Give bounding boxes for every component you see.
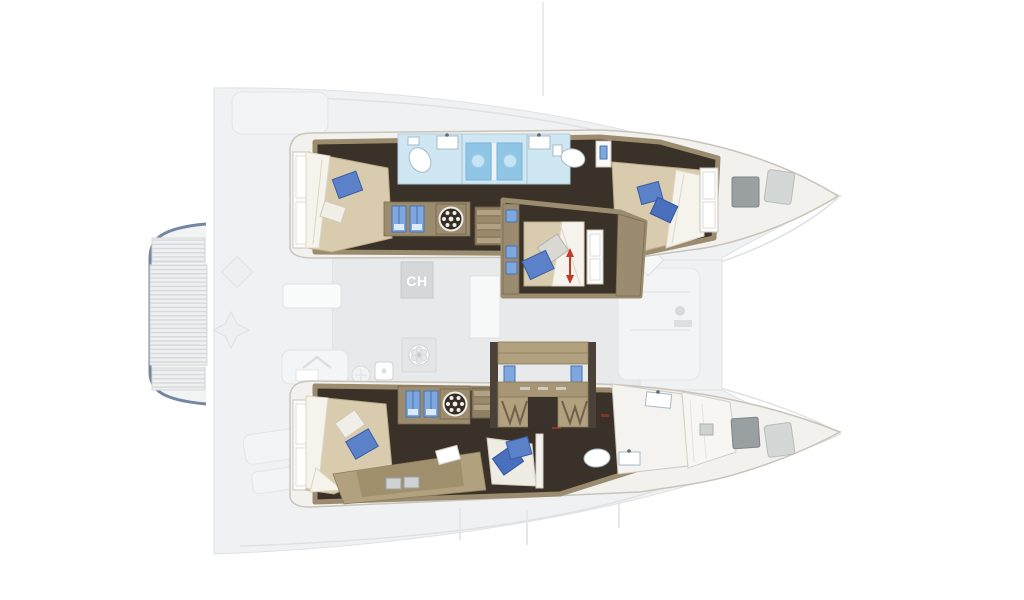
deck-hatch-icon xyxy=(731,417,760,449)
sink-icon xyxy=(645,392,671,409)
wardrobe-door-2 xyxy=(296,448,307,486)
port-aft-cabin xyxy=(293,152,392,252)
partition-wall xyxy=(536,434,543,488)
step xyxy=(477,217,503,222)
handle xyxy=(556,387,566,390)
hanging-locker-icon xyxy=(424,391,438,417)
door-panel-1 xyxy=(703,172,715,199)
step xyxy=(477,210,503,215)
door-panel-2 xyxy=(703,202,715,228)
sink-icon-left xyxy=(437,136,458,149)
step xyxy=(477,238,503,243)
faucet xyxy=(656,390,660,394)
hanging-locker-icon xyxy=(406,391,420,417)
washing-machine-icon xyxy=(436,204,466,234)
cockpit-bench-top xyxy=(232,92,328,134)
deck-hatch-icon xyxy=(732,177,759,207)
galley-cabinet xyxy=(490,342,596,428)
door-panel-2 xyxy=(590,259,600,280)
sink-icon xyxy=(619,452,640,465)
shower-drain-1 xyxy=(472,155,485,168)
shelf-towel xyxy=(506,210,517,222)
floor-plan-canvas: CH xyxy=(0,0,1024,600)
deck-fitting xyxy=(675,306,685,316)
hull-trim xyxy=(616,214,645,296)
blue-bottle xyxy=(504,366,515,382)
deck-hatch-icon xyxy=(764,169,795,204)
catamaran-floor-plan: CH xyxy=(0,0,1024,600)
cabinet-side-right xyxy=(588,342,596,428)
blue-bottle xyxy=(571,366,582,382)
hanging-locker-icon xyxy=(392,206,406,232)
step xyxy=(474,405,492,410)
handle xyxy=(520,387,530,390)
salon-fridge-cabinet xyxy=(470,276,500,338)
door-panel-1 xyxy=(590,234,600,256)
chart-station-label: CH xyxy=(406,273,427,289)
starboard-utility xyxy=(398,386,494,424)
shower-drain xyxy=(700,424,713,435)
wardrobe-door-1 xyxy=(296,156,307,198)
wardrobe-door-2 xyxy=(296,202,307,244)
forward-master-cabin xyxy=(503,200,645,296)
step xyxy=(477,231,503,236)
deck-hatch-icon xyxy=(764,422,795,457)
faucet-right xyxy=(537,133,541,137)
sink-drain xyxy=(382,369,387,374)
wardrobe-door-1 xyxy=(296,404,307,444)
washing-machine-icon xyxy=(440,389,470,419)
toilet-tank-left xyxy=(408,137,419,145)
drawer-1 xyxy=(386,478,401,489)
cabinet-side-left xyxy=(490,342,498,428)
locker-gap xyxy=(528,397,558,427)
salon-aft-door xyxy=(283,284,341,308)
stern-platform xyxy=(150,224,207,404)
dimension-mark xyxy=(601,414,609,417)
drawer-2 xyxy=(404,477,419,488)
shelf-towel xyxy=(506,262,517,274)
shelf-towel xyxy=(506,246,517,258)
step xyxy=(474,398,492,403)
platform-slats-bottom xyxy=(152,368,205,390)
platform-slats-top xyxy=(152,238,205,262)
hanging-locker-icon xyxy=(600,146,607,159)
step xyxy=(477,224,503,229)
deck-step xyxy=(674,320,692,327)
shower-drain-2 xyxy=(504,155,517,168)
faucet-left xyxy=(445,133,449,137)
faucet xyxy=(627,449,631,453)
hanging-locker-icon xyxy=(410,206,424,232)
vent-fan-icon xyxy=(409,345,429,365)
sink-icon-right xyxy=(529,136,550,149)
handle xyxy=(538,387,548,390)
toilet-tank-right xyxy=(553,145,562,156)
step xyxy=(474,391,492,396)
shower-mullion xyxy=(492,143,497,180)
sofa-pillow-ghost xyxy=(296,370,318,381)
platform-slats-main xyxy=(150,265,207,365)
